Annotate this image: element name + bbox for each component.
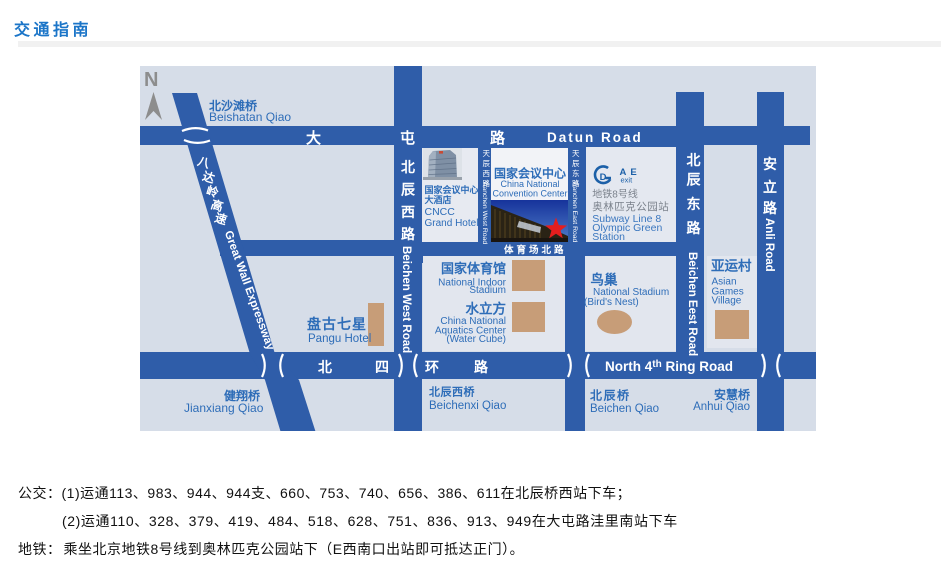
svg-text:天: 天 (572, 149, 580, 158)
svg-text:Jianxiang Qiao: Jianxiang Qiao (184, 401, 264, 415)
svg-text:Station: Station (592, 231, 625, 243)
svg-text:Beishatan Qiao: Beishatan Qiao (209, 110, 291, 124)
svg-text:天: 天 (483, 149, 491, 158)
svg-text:辰: 辰 (483, 159, 491, 168)
svg-text:大酒店: 大酒店 (425, 194, 452, 205)
svg-text:立: 立 (763, 179, 777, 195)
svg-text:Datun Road: Datun Road (547, 130, 643, 145)
svg-text:路: 路 (763, 200, 778, 216)
svg-text:北: 北 (687, 152, 701, 168)
svg-text:路: 路 (474, 359, 489, 375)
svg-text:国家会议中心: 国家会议中心 (425, 184, 479, 195)
svg-text:Beichen Qiao: Beichen Qiao (590, 403, 659, 415)
svg-text:CNCC: CNCC (425, 206, 456, 218)
svg-text:路: 路 (490, 129, 506, 147)
svg-text:水立方: 水立方 (466, 301, 507, 317)
svg-text:Beichen Eest Road: Beichen Eest Road (686, 252, 698, 356)
svg-text:体育场北路: 体育场北路 (504, 244, 567, 256)
svg-text:Beichen West Road: Beichen West Road (400, 246, 412, 353)
svg-text:北: 北 (401, 159, 415, 175)
svg-text:环: 环 (425, 359, 439, 375)
svg-text:(Bird's Nest): (Bird's Nest) (584, 297, 639, 308)
svg-text:Anli Road: Anli Road (763, 218, 775, 272)
svg-text:西: 西 (401, 204, 415, 220)
svg-text:Village: Village (712, 296, 742, 307)
svg-text:盘古七星: 盘古七星 (307, 316, 367, 332)
svg-text:Tianchen West Road: Tianchen West Road (481, 181, 488, 244)
svg-text:Convention Center: Convention Center (492, 189, 567, 199)
svg-text:奥林匹克公园站: 奥林匹克公园站 (592, 200, 669, 213)
svg-text:North 4th Ring Road: North 4th Ring Road (605, 359, 733, 374)
svg-text:Stadium: Stadium (469, 285, 506, 296)
svg-text:Anhui Qiao: Anhui Qiao (693, 401, 750, 413)
svg-text:北辰西桥: 北辰西桥 (429, 385, 475, 399)
svg-text:四: 四 (375, 359, 389, 375)
svg-text:Pangu Hotel: Pangu Hotel (308, 333, 371, 345)
svg-text:安: 安 (763, 156, 777, 172)
svg-text:辰: 辰 (572, 159, 580, 168)
svg-text:亚运村: 亚运村 (711, 258, 752, 274)
svg-text:屯: 屯 (400, 129, 415, 147)
svg-text:大: 大 (306, 129, 321, 147)
svg-text:Tianchen East Road: Tianchen East Road (571, 181, 578, 243)
svg-text:国家体育馆: 国家体育馆 (441, 261, 506, 276)
svg-text:北: 北 (318, 359, 332, 375)
svg-text:西: 西 (483, 169, 491, 178)
svg-text:辰: 辰 (687, 172, 702, 188)
svg-text:东: 东 (687, 196, 701, 212)
svg-text:D: D (600, 172, 607, 183)
svg-text:路: 路 (401, 226, 416, 242)
svg-text:(Water Cube): (Water Cube) (446, 334, 506, 345)
svg-text:辰: 辰 (401, 182, 416, 198)
svg-text:鸟巢: 鸟巢 (591, 272, 619, 288)
svg-text:Grand Hotel: Grand Hotel (425, 218, 479, 229)
svg-text:exit: exit (621, 176, 634, 185)
svg-text:路: 路 (687, 220, 702, 236)
svg-text:N: N (144, 69, 158, 91)
svg-text:地铁8号线: 地铁8号线 (592, 188, 638, 201)
svg-text:China National: China National (500, 179, 559, 189)
svg-text:北辰桥: 北辰桥 (590, 388, 631, 403)
svg-text:安慧桥: 安慧桥 (714, 387, 751, 402)
svg-text:东: 东 (572, 168, 580, 178)
svg-text:Beichenxi Qiao: Beichenxi Qiao (429, 400, 506, 412)
